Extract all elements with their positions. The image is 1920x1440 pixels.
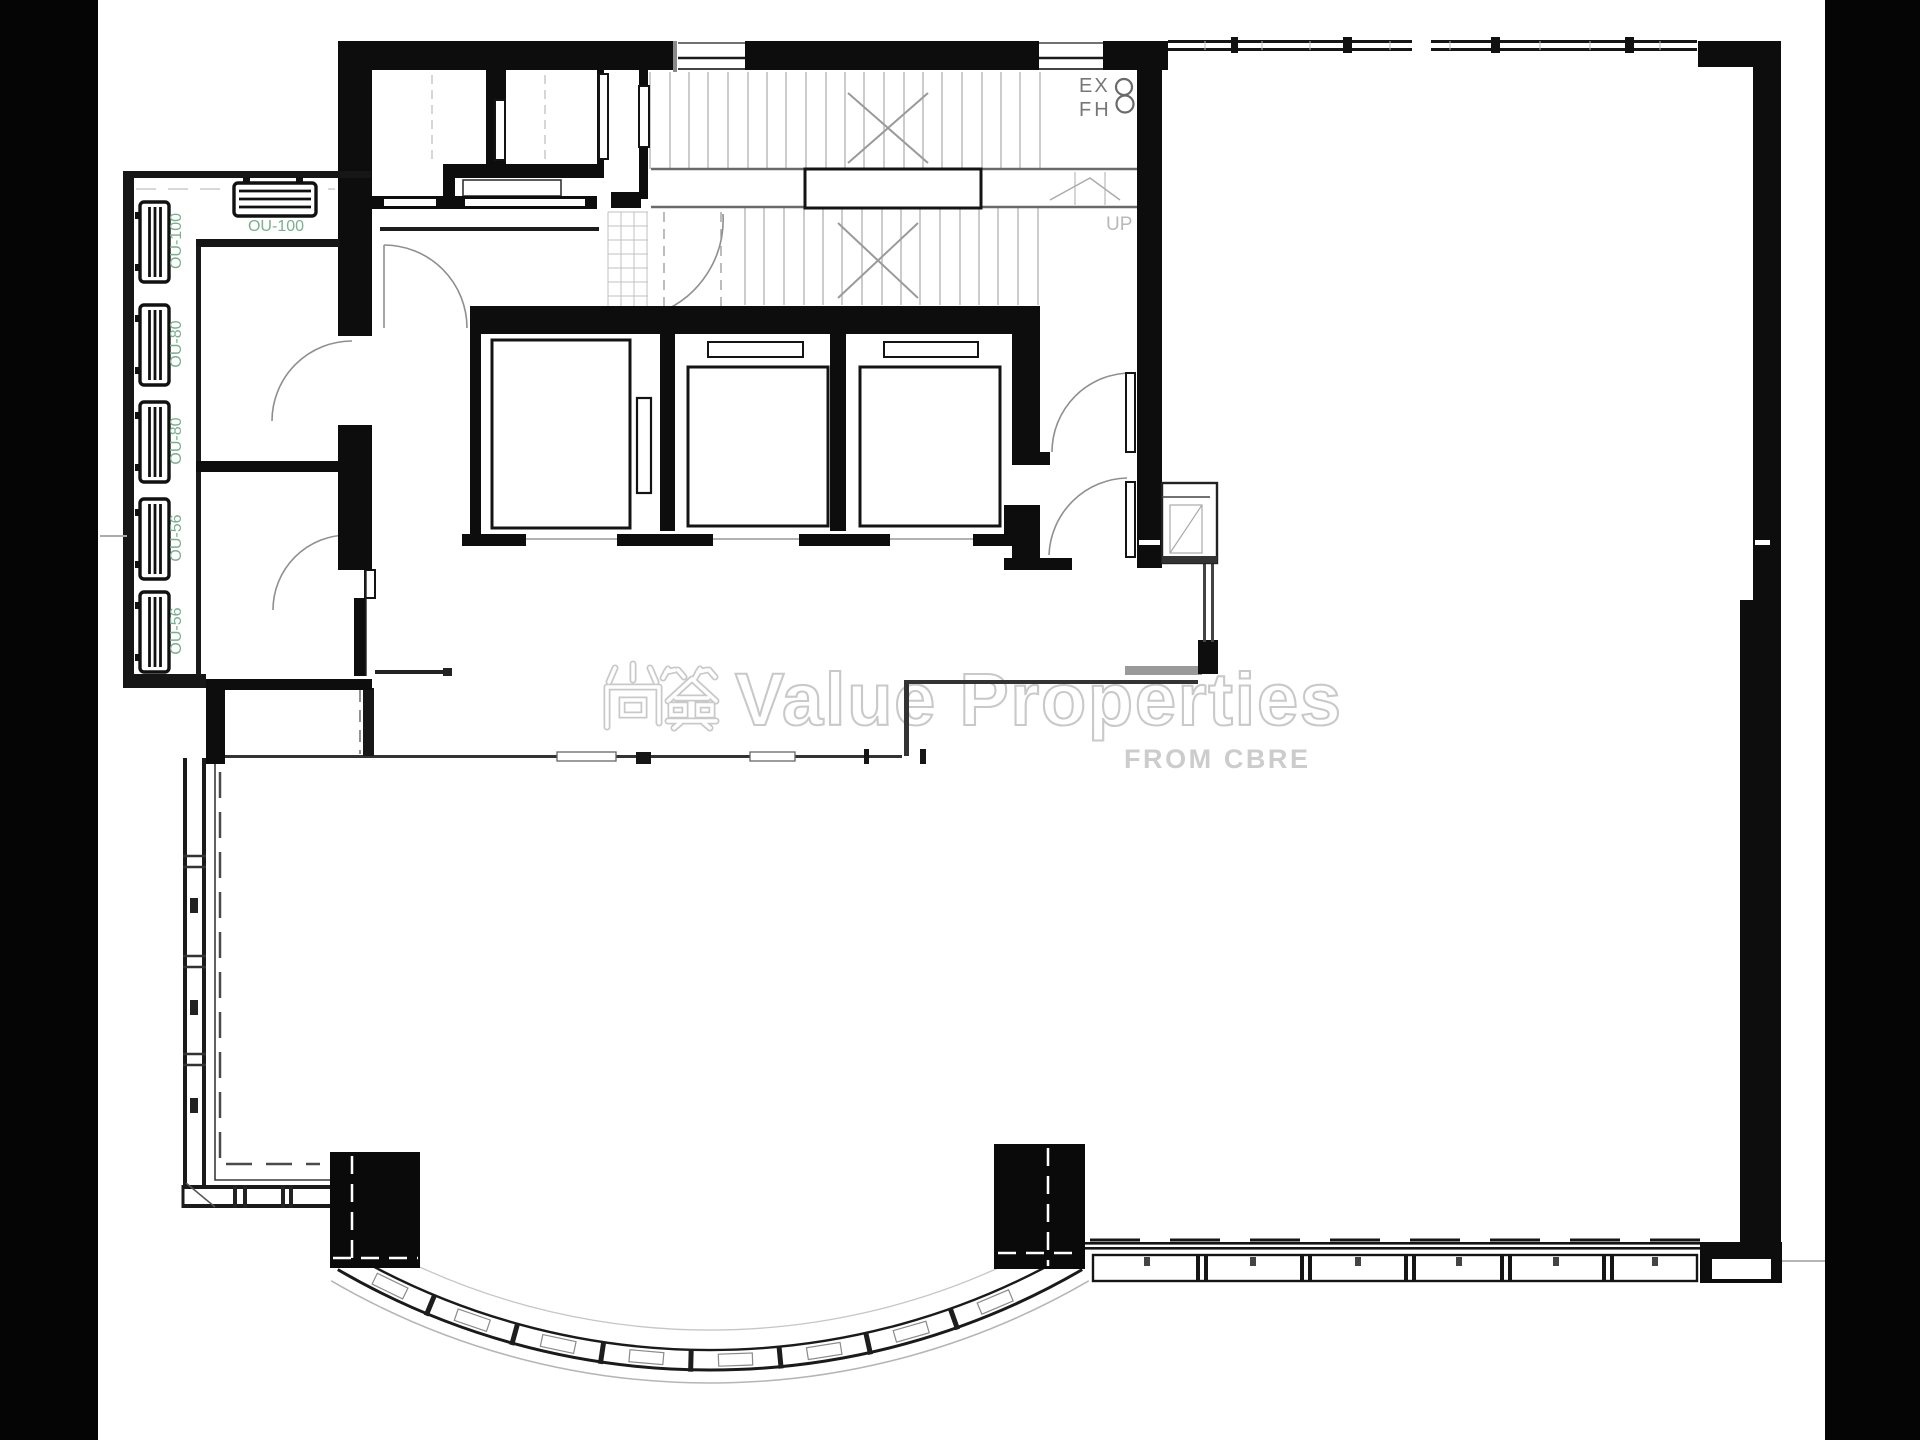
svg-text:FROM CBRE: FROM CBRE bbox=[1124, 744, 1308, 774]
svg-text:UP: UP bbox=[1106, 214, 1132, 235]
svg-text:OU-100: OU-100 bbox=[168, 213, 185, 269]
svg-text:OU-56: OU-56 bbox=[168, 514, 185, 561]
svg-text:OU-80: OU-80 bbox=[168, 320, 185, 367]
svg-text:FH: FH bbox=[1079, 99, 1112, 121]
svg-text:OU-80: OU-80 bbox=[168, 417, 185, 464]
svg-text:OU-56: OU-56 bbox=[168, 607, 185, 654]
svg-text:EX: EX bbox=[1079, 75, 1110, 97]
svg-text:Value Properties: Value Properties bbox=[735, 658, 1341, 741]
svg-text:OU-100: OU-100 bbox=[248, 218, 304, 235]
